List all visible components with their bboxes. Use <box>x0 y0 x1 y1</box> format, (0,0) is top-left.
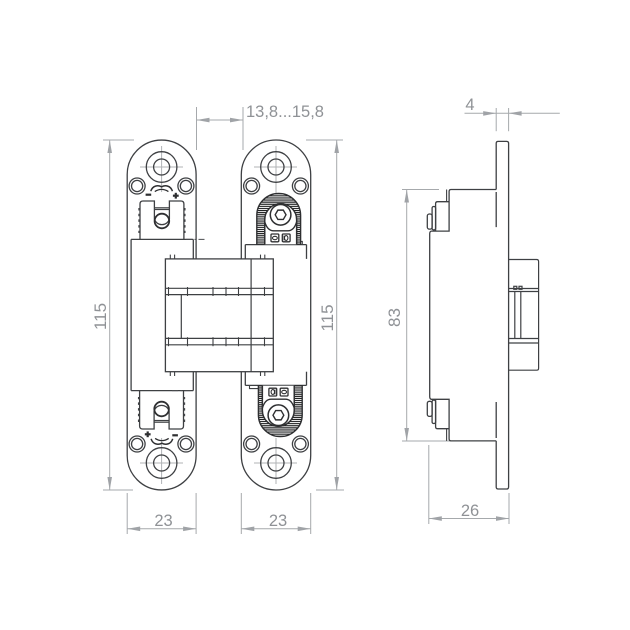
svg-text:13,8...15,8: 13,8...15,8 <box>246 103 324 121</box>
svg-text:83: 83 <box>385 308 404 327</box>
svg-text:23: 23 <box>269 512 287 530</box>
svg-text:4: 4 <box>465 96 474 114</box>
svg-text:23: 23 <box>154 512 172 530</box>
svg-text:115: 115 <box>318 304 337 331</box>
svg-text:26: 26 <box>461 502 479 520</box>
svg-text:115: 115 <box>91 303 110 330</box>
